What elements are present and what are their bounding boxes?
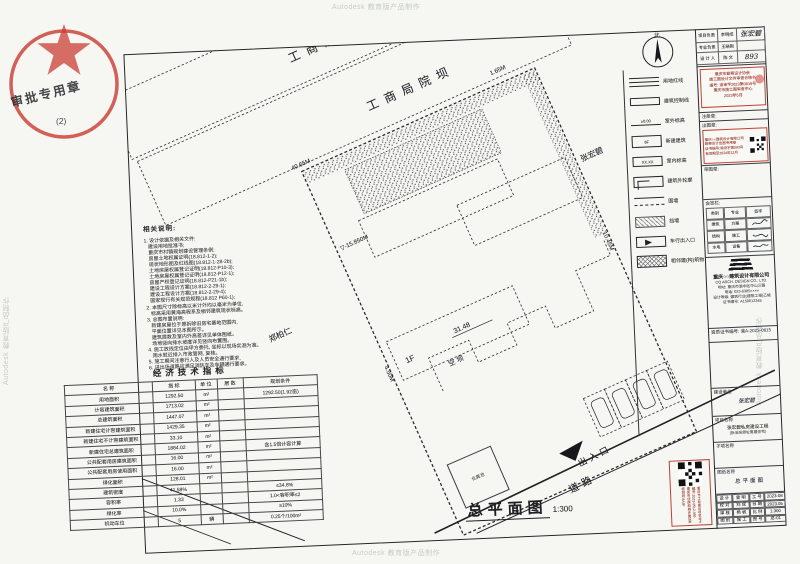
owner-value: 张宏碧 <box>714 395 779 406</box>
empty-lot-label: 空坝 <box>447 353 467 369</box>
legend-item: 相邻建(构)筑物 <box>637 249 706 272</box>
blank-section <box>710 340 781 389</box>
signature-scribble <box>747 240 772 253</box>
autodesk-watermark-top: Autodesk 教育版产品制作 <box>332 2 420 12</box>
stamp-vertical-text: 重庆市工程建设项目电子报建图专用章 编号:2023-0512-089 重庆市住房… <box>680 486 701 523</box>
elevation-symbol: ±0.00 <box>631 117 661 126</box>
autodesk-watermark-bottom: Autodesk 教育版产品制作 <box>352 548 440 558</box>
chop-stamp: 重庆○○建筑设计有限公司 勘察设计出图专用章 证书编号:渝设字第093号 有效期… <box>702 127 768 164</box>
road-label: 道路 <box>567 472 598 496</box>
car-symbol <box>590 397 615 429</box>
indicators-table: 名 称 指 标 单 位 层 数 规划条件 用地面积1292.50m²1292.5… <box>64 374 324 531</box>
floor-count-label: 1F <box>404 353 416 365</box>
field-project: 项目名称 张宏碧私房建设工程 (拆旧房原址重建住宅) <box>713 414 783 443</box>
boundary-line-symbol <box>629 76 659 86</box>
review-chop-label: 审图章: <box>702 163 772 200</box>
chop-stamp-section: 出图章: 重庆○○建筑设计有限公司 勘察设计出图专用章 证书编号:渝设字第093… <box>700 119 771 166</box>
drawing-sheet: 工商局单身宿舍楼 工商局院坝 40.65M 1.65M 10.45M 4.50M… <box>123 26 786 554</box>
field-subproject: 子项名称 <box>714 440 784 469</box>
fence-symbol <box>634 197 664 206</box>
handwritten-signature: 张宏碧 <box>737 26 766 41</box>
institute-logo <box>727 258 754 272</box>
new-building-symbol: 6F <box>631 135 661 148</box>
entrance-label: 出入口 <box>576 443 613 469</box>
retaining-wall-symbol <box>635 215 665 227</box>
entrance-symbol <box>636 235 666 247</box>
stamp-text: 审批专用章 <box>9 78 83 110</box>
north-compass: 北 <box>642 30 674 67</box>
drawing-scale: 1:300 <box>552 504 572 514</box>
adjacent-structure-symbol <box>637 255 667 268</box>
scanned-site-plan-page: Autodesk 教育版产品制作 Autodesk 教育版产品制作 Autode… <box>0 0 800 564</box>
qr-code-icon <box>677 461 702 486</box>
control-line-symbol <box>630 97 660 106</box>
red-seal-blob <box>755 74 764 83</box>
outline-symbol <box>633 175 663 187</box>
signature-mini-table: 项目负责李明成张宏碧 专业负责王晓刚 设 计 人陈 文893 <box>696 26 767 67</box>
adjacent-yard-label: 工商局院坝 <box>364 61 457 113</box>
neighbor-right-label: 张宏碧 <box>579 145 605 164</box>
dimension-left: 4.50M <box>382 365 394 383</box>
review-stamp: 重庆市勘察设计协会 施工图设计文件审查合格书 编号: 渝审字2023第0816号… <box>700 66 767 108</box>
building-2 <box>457 157 583 245</box>
field-drawing-name: 图纸名称 总平面图 <box>715 466 785 495</box>
north-label: 北 <box>654 31 660 39</box>
notes-block: 相关说明: 1. 设计依据及相关文件: 建设用地批准书; 重庆市村镇规划建设管理… <box>143 215 347 372</box>
stepped-building-outline <box>414 241 633 391</box>
electronic-approval-stamp: 重庆市工程建设项目电子报建图专用章 编号:2023-0512-089 重庆市住房… <box>669 459 713 527</box>
dimension-corner: 1.65M <box>489 65 507 77</box>
adjacent-building-label: 工商局单身宿舍楼 <box>286 26 431 65</box>
field-owner: 建设单位 张宏碧 <box>712 386 782 417</box>
drawing-title-text: 总平面图 <box>465 499 550 522</box>
qr-code-icon <box>750 136 767 153</box>
countersign-table: 类别专业签字 建筑方案 结构施工 水电设备 <box>706 205 773 254</box>
car-symbol <box>611 387 636 419</box>
handwritten-signature: 893 <box>738 50 766 63</box>
elevation-label: ▽-15.850M <box>340 234 370 252</box>
design-institute-section: 重庆○○建筑设计有限公司 CQ ARCH. DESIGN CO., LTD. 地… <box>706 255 778 329</box>
review-stamp-section: 重庆市勘察设计协会 施工图设计文件审查合格书 编号: 渝审字2023第0816号… <box>698 64 769 113</box>
stamp-number: (2) <box>56 116 67 126</box>
approval-round-stamp: 审批专用章 (2) <box>0 4 142 146</box>
autodesk-watermark-left: Autodesk 教育版产品制作 <box>2 215 12 385</box>
star-icon <box>37 24 90 75</box>
countersign-section: 会签栏: 类别专业签字 建筑方案 结构施工 水电设备 <box>703 197 774 258</box>
indicators-block: 经济技术指标 名 称 指 标 单 位 层 数 规划条件 用地面积1292.50m… <box>63 360 324 531</box>
bottom-info-table: 设 计曾 明工 号2023-08 校 对刘 成日 期2023.05 审 核杨 帆… <box>716 492 786 525</box>
dimension-top: 40.65M <box>291 158 312 172</box>
compass-needle <box>654 39 662 63</box>
indoor-elevation-symbol: XX.XX <box>632 156 662 167</box>
